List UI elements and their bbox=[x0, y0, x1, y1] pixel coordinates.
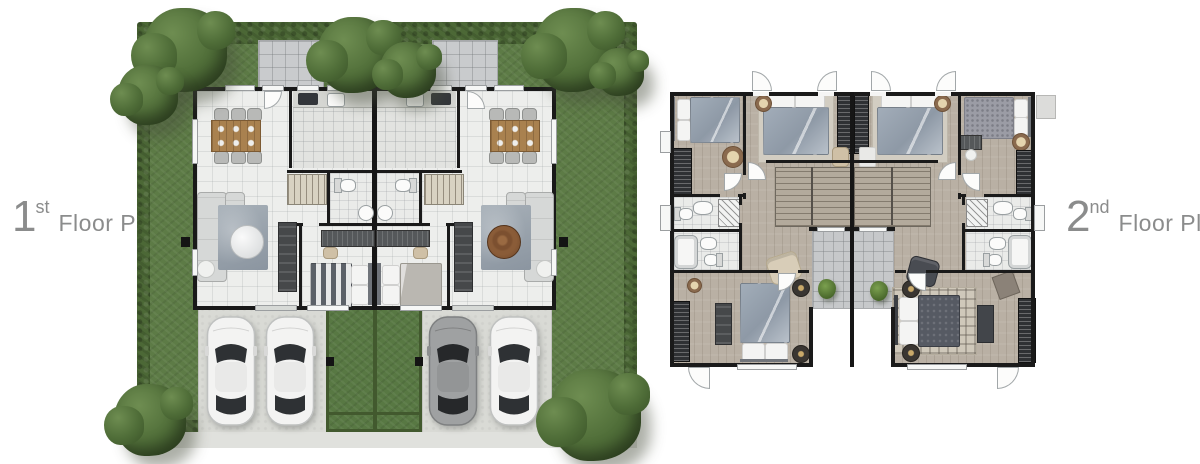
window bbox=[907, 364, 967, 370]
staircase bbox=[287, 174, 327, 205]
window bbox=[551, 119, 557, 164]
shower bbox=[966, 199, 988, 227]
bedside-table bbox=[722, 146, 744, 168]
pillow bbox=[677, 120, 691, 141]
tree bbox=[549, 369, 641, 461]
pillow bbox=[899, 321, 919, 345]
bed-headboard bbox=[368, 263, 372, 305]
stair-rail bbox=[891, 167, 893, 225]
door-swing-arc bbox=[688, 367, 710, 389]
side-table bbox=[197, 260, 215, 278]
toilet bbox=[988, 254, 1002, 266]
pillow bbox=[1014, 99, 1028, 118]
door-swing-arc bbox=[752, 71, 772, 91]
side-table bbox=[687, 278, 702, 293]
door-opening bbox=[818, 92, 834, 96]
second-floor-ordinal: nd bbox=[1089, 197, 1109, 217]
wall bbox=[739, 223, 742, 273]
desk bbox=[958, 135, 982, 150]
wall bbox=[854, 160, 938, 163]
wall bbox=[319, 223, 374, 226]
entry-door bbox=[452, 305, 494, 311]
staircase bbox=[424, 174, 464, 205]
bed bbox=[690, 97, 740, 143]
bed-headboard bbox=[740, 359, 788, 362]
dining-chair bbox=[214, 151, 229, 164]
wash-basin bbox=[700, 237, 717, 250]
car-white bbox=[205, 315, 257, 427]
hall-mat bbox=[859, 147, 876, 167]
wash-basin bbox=[377, 205, 393, 221]
party-wall bbox=[850, 92, 854, 367]
wash-basin bbox=[358, 205, 374, 221]
toilet bbox=[679, 208, 693, 220]
pillow bbox=[351, 265, 369, 285]
door-opening bbox=[935, 92, 951, 96]
window bbox=[192, 119, 198, 164]
bedside-table bbox=[1012, 133, 1030, 151]
side-table bbox=[902, 344, 920, 362]
gate-post bbox=[559, 237, 568, 247]
gate-post bbox=[326, 357, 334, 366]
cooktop bbox=[431, 93, 451, 105]
wall bbox=[670, 229, 739, 232]
wall bbox=[375, 223, 430, 226]
car-white bbox=[488, 315, 540, 427]
toilet bbox=[395, 179, 411, 192]
window bbox=[400, 305, 442, 311]
bed bbox=[310, 263, 352, 307]
first-floor-ordinal: st bbox=[35, 197, 49, 217]
second-floor-plan bbox=[660, 55, 1060, 375]
pillow bbox=[677, 99, 691, 120]
bed bbox=[740, 283, 790, 343]
dining-chair bbox=[231, 151, 246, 164]
desk bbox=[321, 230, 375, 247]
window-sill bbox=[1034, 205, 1045, 231]
wall bbox=[670, 270, 778, 273]
wall bbox=[984, 194, 1034, 197]
wall bbox=[739, 197, 742, 205]
balcony-door bbox=[817, 227, 845, 232]
bathtub bbox=[1008, 235, 1032, 269]
gate-post bbox=[181, 237, 190, 247]
bedside-table bbox=[934, 95, 951, 112]
bed bbox=[918, 295, 960, 347]
coffee-table bbox=[230, 225, 264, 259]
wall bbox=[447, 223, 450, 310]
toilet bbox=[716, 253, 723, 267]
staircase bbox=[775, 167, 852, 227]
wash-basin bbox=[989, 237, 1006, 250]
wall bbox=[891, 307, 895, 367]
wall bbox=[962, 197, 965, 205]
wash-basin bbox=[693, 201, 713, 215]
pillow bbox=[382, 265, 400, 285]
bed bbox=[400, 263, 442, 307]
wall bbox=[965, 229, 1034, 232]
shower bbox=[718, 199, 740, 227]
window bbox=[297, 85, 319, 91]
wall bbox=[670, 194, 720, 197]
floor-plans-image: 1stFloor Plan bbox=[0, 0, 1200, 464]
stair-rail bbox=[811, 167, 813, 225]
bed bbox=[877, 107, 943, 155]
tv-console bbox=[715, 303, 732, 345]
wall bbox=[798, 270, 809, 273]
tree bbox=[118, 65, 178, 125]
wash-basin bbox=[993, 201, 1013, 215]
bedside-table bbox=[755, 95, 772, 112]
wall bbox=[299, 223, 302, 310]
wall bbox=[743, 193, 746, 199]
pillow bbox=[899, 297, 919, 321]
tree bbox=[114, 384, 186, 456]
wall bbox=[926, 270, 1034, 273]
window bbox=[494, 85, 524, 91]
stool bbox=[323, 247, 338, 259]
dining-chair bbox=[247, 151, 262, 164]
door-opening bbox=[753, 92, 769, 96]
wall bbox=[958, 92, 961, 175]
dining-chair bbox=[505, 151, 520, 164]
second-floor-number: 2 bbox=[1066, 192, 1089, 241]
first-floor-number: 1 bbox=[12, 192, 35, 241]
pillow bbox=[351, 285, 369, 305]
gate-post bbox=[415, 357, 423, 366]
car-gray bbox=[427, 315, 479, 427]
door-swing-arc bbox=[936, 71, 956, 91]
balcony-door bbox=[859, 227, 887, 232]
wall bbox=[766, 160, 850, 163]
window bbox=[430, 85, 452, 91]
kitchen-sink bbox=[327, 93, 345, 107]
wall bbox=[457, 87, 460, 168]
window bbox=[225, 85, 255, 91]
second-floor-label: 2ndFloor Plan bbox=[1066, 192, 1200, 242]
wall bbox=[809, 307, 813, 367]
window bbox=[551, 249, 557, 276]
bed-headboard bbox=[377, 263, 381, 305]
stool bbox=[413, 247, 428, 259]
toilet bbox=[340, 179, 356, 192]
window bbox=[192, 249, 198, 276]
wall bbox=[419, 173, 422, 225]
bed bbox=[763, 107, 829, 155]
dining-table bbox=[490, 120, 540, 152]
lawn-hedge-divider bbox=[326, 412, 422, 415]
toilet bbox=[983, 253, 990, 267]
door-swing-arc bbox=[817, 71, 837, 91]
desk bbox=[376, 230, 430, 247]
first-floor-plan bbox=[137, 14, 637, 447]
desk-chair bbox=[965, 149, 977, 161]
second-floor-caption: Floor Plan bbox=[1119, 210, 1200, 236]
car-white bbox=[264, 315, 316, 427]
hall-bench bbox=[832, 147, 849, 167]
door-swing-arc bbox=[871, 71, 891, 91]
bench bbox=[977, 305, 994, 343]
dining-chair bbox=[522, 151, 537, 164]
dining-chair bbox=[489, 151, 504, 164]
entry-door bbox=[255, 305, 297, 311]
side-table bbox=[792, 345, 810, 363]
window bbox=[737, 364, 797, 370]
tv-console bbox=[278, 222, 297, 292]
wall bbox=[895, 270, 906, 273]
wall bbox=[289, 87, 292, 168]
tree bbox=[380, 42, 436, 98]
tree bbox=[596, 48, 644, 96]
roof-ledge bbox=[1036, 95, 1056, 119]
bed bbox=[964, 97, 1014, 139]
tv-console bbox=[454, 222, 473, 292]
wardrobe bbox=[854, 92, 869, 154]
side-table bbox=[792, 279, 810, 297]
window bbox=[307, 305, 349, 311]
bathtub bbox=[674, 235, 698, 269]
pillow bbox=[382, 285, 400, 305]
toilet bbox=[1013, 208, 1027, 220]
window-sill bbox=[660, 205, 671, 231]
dining-table bbox=[211, 120, 261, 152]
door-swing-arc bbox=[997, 367, 1019, 389]
cooktop bbox=[298, 93, 318, 105]
door-opening bbox=[870, 92, 886, 96]
wall bbox=[743, 92, 746, 175]
coffee-table bbox=[487, 225, 521, 259]
window-sill bbox=[660, 131, 671, 153]
